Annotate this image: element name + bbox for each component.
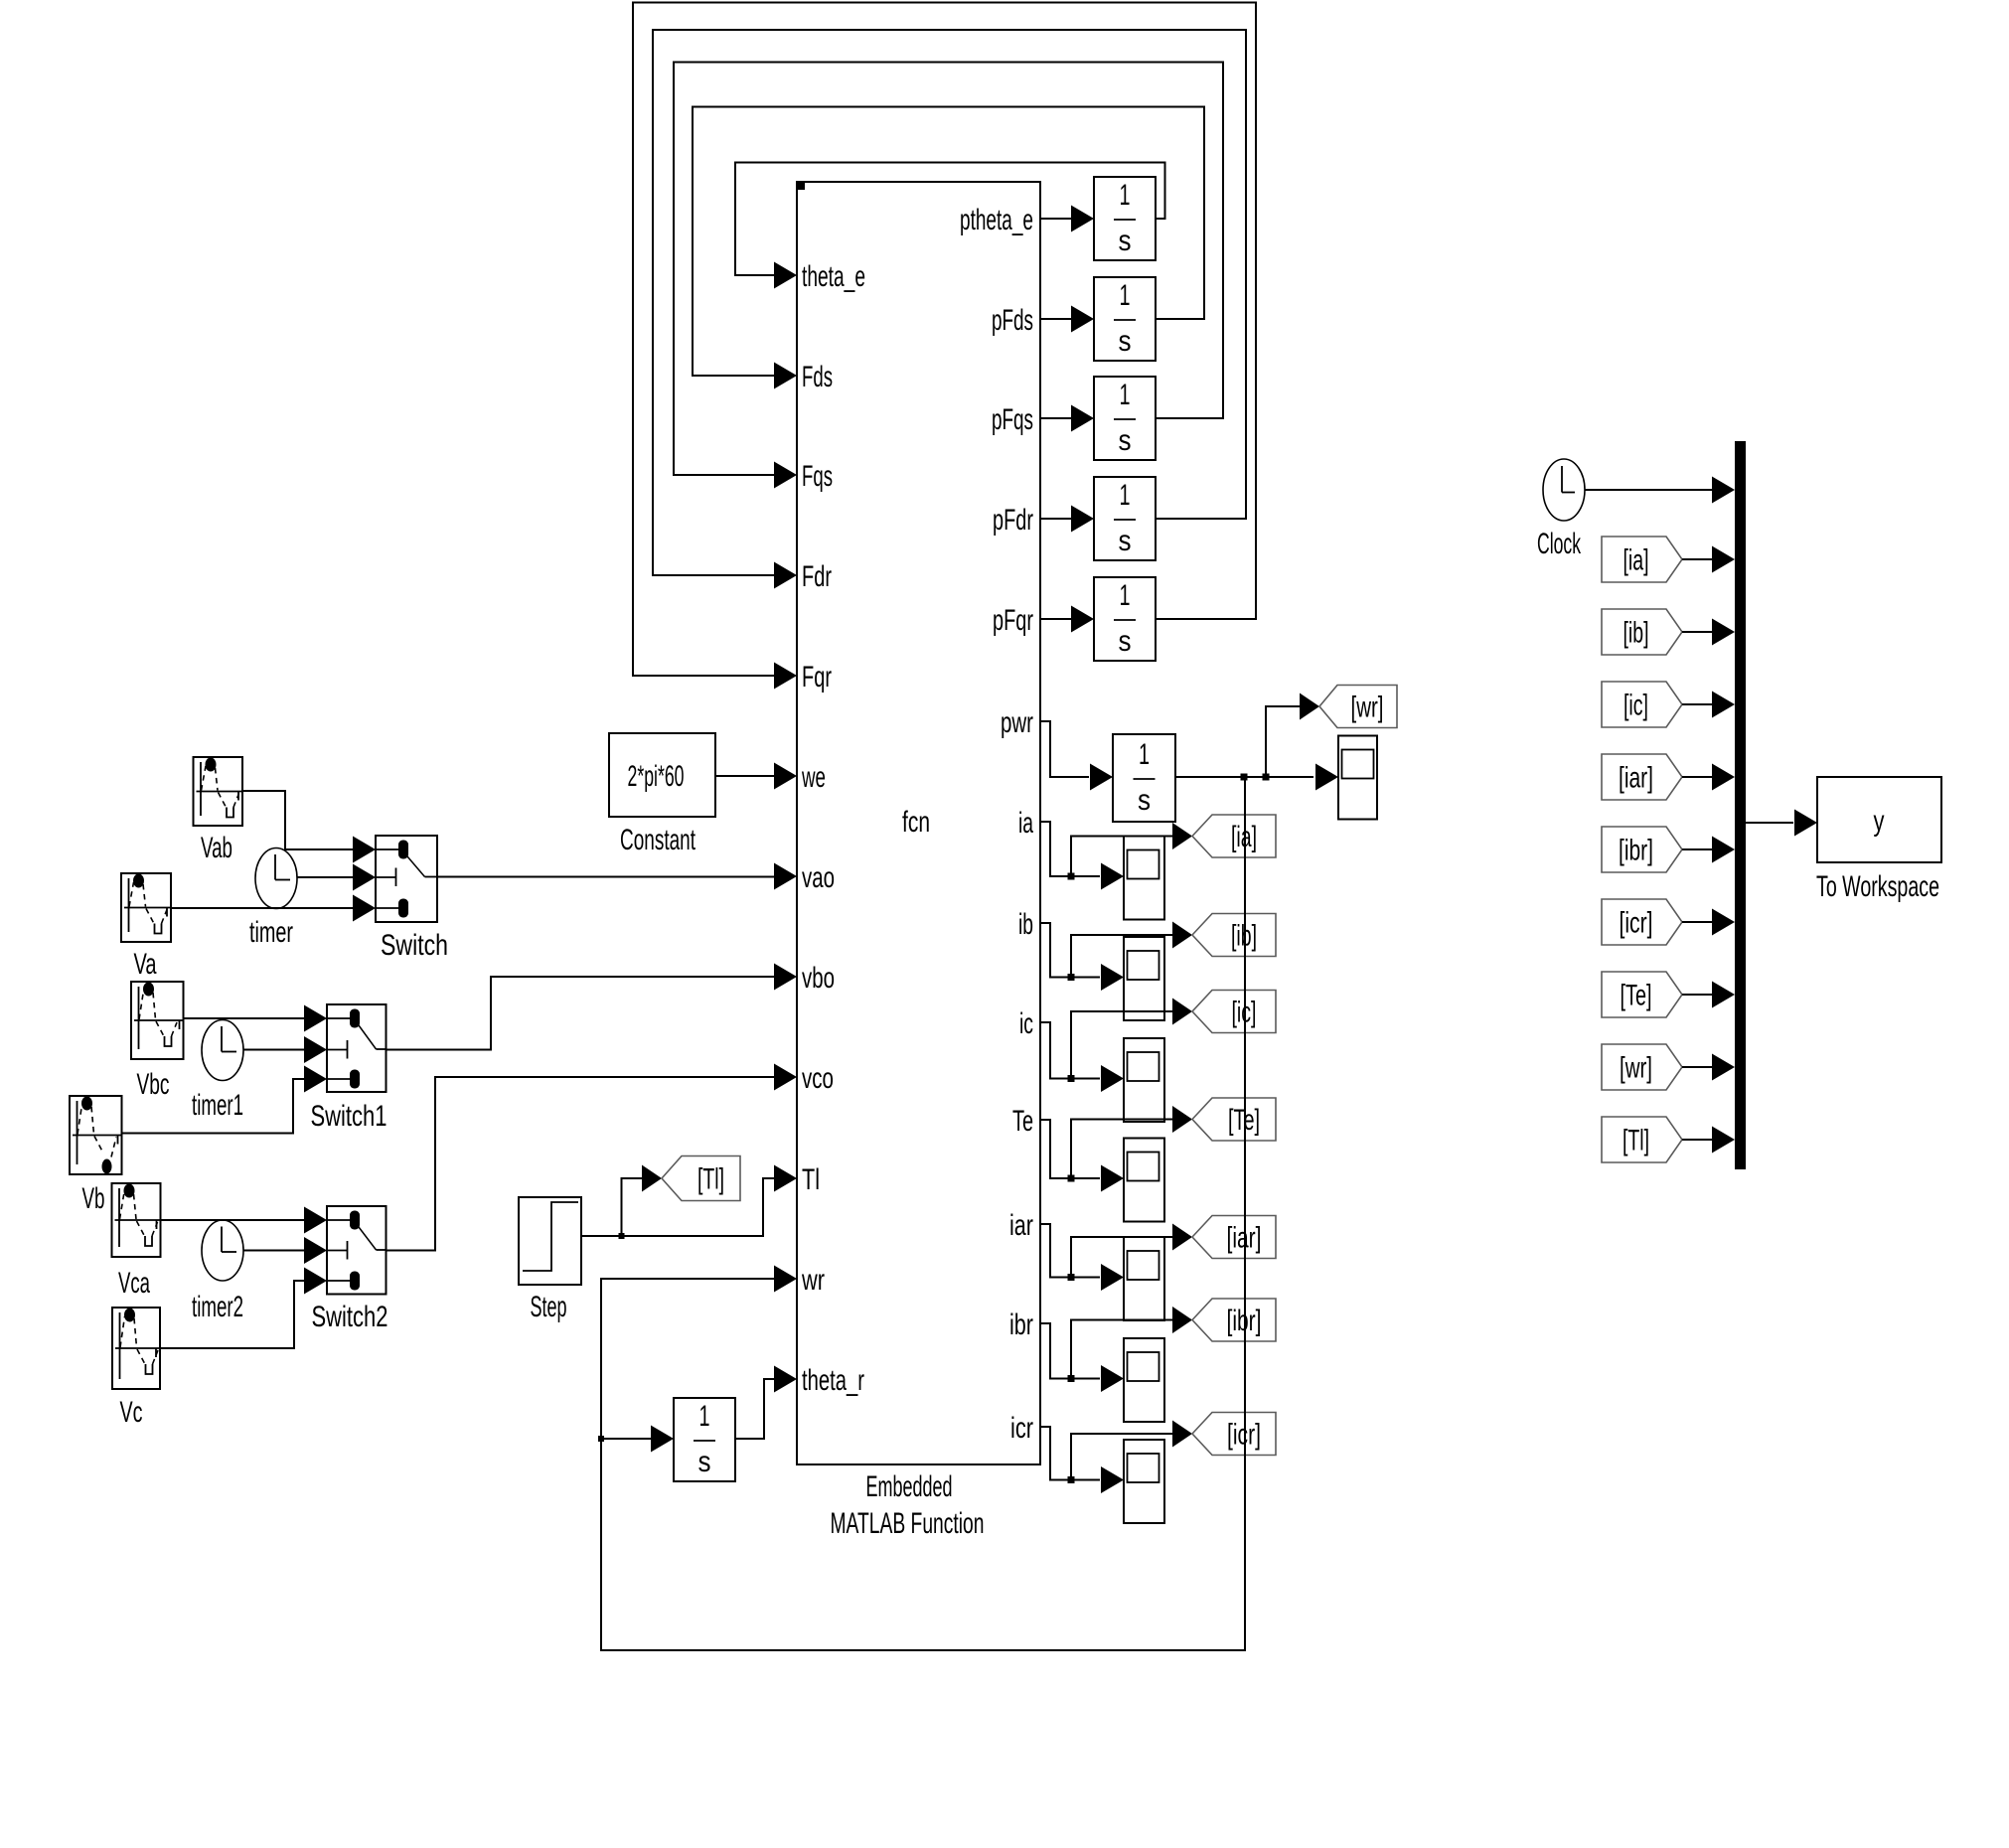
svg-text:theta_e: theta_e [802, 260, 865, 293]
svg-text:pFqr: pFqr [993, 604, 1033, 637]
svg-text:Switch2: Switch2 [312, 1301, 388, 1333]
svg-text:Vca: Vca [118, 1267, 150, 1300]
svg-text:Step: Step [531, 1291, 567, 1323]
svg-text:we: we [801, 761, 826, 794]
svg-text:s: s [1119, 525, 1132, 557]
svg-text:To Workspace: To Workspace [1816, 870, 1939, 903]
svg-text:[ibr]: [ibr] [1619, 835, 1653, 867]
svg-text:s: s [1119, 424, 1132, 457]
svg-text:Vbc: Vbc [137, 1068, 170, 1101]
svg-text:theta_r: theta_r [802, 1364, 864, 1397]
svg-text:vao: vao [802, 861, 835, 894]
svg-text:[wr]: [wr] [1620, 1052, 1652, 1085]
svg-text:ib: ib [1018, 908, 1033, 941]
svg-text:timer: timer [249, 916, 293, 949]
svg-text:1: 1 [1120, 279, 1131, 312]
svg-text:[wr]: [wr] [1351, 692, 1384, 724]
svg-text:Fdr: Fdr [802, 560, 832, 593]
svg-text:Fds: Fds [802, 361, 833, 393]
svg-text:1: 1 [1139, 738, 1150, 771]
svg-text:pwr: pwr [1001, 706, 1033, 739]
svg-text:y: y [1874, 805, 1885, 838]
svg-text:vco: vco [802, 1062, 834, 1095]
svg-text:Embedded: Embedded [866, 1470, 953, 1503]
svg-text:s: s [698, 1446, 711, 1478]
svg-text:iar: iar [1009, 1209, 1033, 1242]
svg-text:Tl: Tl [802, 1163, 820, 1196]
svg-text:1: 1 [699, 1400, 710, 1433]
svg-text:pFdr: pFdr [993, 504, 1033, 537]
svg-text:Switch: Switch [381, 929, 448, 962]
svg-text:Va: Va [134, 948, 157, 981]
svg-text:[icr]: [icr] [1620, 907, 1653, 940]
svg-text:wr: wr [801, 1264, 825, 1297]
svg-text:s: s [1119, 325, 1132, 358]
svg-text:1: 1 [1120, 479, 1131, 512]
svg-text:[Te]: [Te] [1621, 980, 1652, 1012]
svg-text:icr: icr [1010, 1412, 1033, 1445]
svg-text:s: s [1119, 225, 1132, 257]
svg-text:Fqr: Fqr [802, 661, 832, 693]
svg-text:pFqs: pFqs [992, 403, 1033, 436]
svg-text:s: s [1119, 625, 1132, 658]
svg-text:1: 1 [1120, 579, 1131, 612]
svg-text:Constant: Constant [620, 824, 695, 856]
svg-text:timer2: timer2 [192, 1291, 243, 1323]
svg-text:[Tl]: [Tl] [697, 1163, 724, 1196]
svg-text:[ia]: [ia] [1623, 544, 1649, 577]
svg-text:1: 1 [1120, 379, 1131, 411]
svg-text:[ib]: [ib] [1623, 617, 1649, 650]
svg-text:1: 1 [1120, 179, 1131, 212]
svg-text:Fqs: Fqs [802, 460, 833, 493]
svg-text:[ic]: [ic] [1623, 690, 1648, 722]
svg-text:Vb: Vb [82, 1182, 105, 1215]
svg-text:ptheta_e: ptheta_e [960, 204, 1033, 236]
svg-text:Switch1: Switch1 [311, 1100, 387, 1133]
svg-text:ibr: ibr [1009, 1309, 1033, 1341]
svg-text:timer1: timer1 [192, 1089, 243, 1122]
svg-text:Te: Te [1012, 1105, 1033, 1138]
svg-text:ic: ic [1019, 1007, 1033, 1040]
svg-text:MATLAB Function: MATLAB Function [831, 1507, 985, 1540]
svg-text:[Tl]: [Tl] [1623, 1125, 1649, 1157]
svg-text:s: s [1138, 784, 1151, 817]
svg-text:Vc: Vc [120, 1396, 143, 1429]
svg-text:ia: ia [1018, 807, 1033, 840]
svg-text:Vab: Vab [201, 832, 232, 864]
svg-text:vbo: vbo [802, 962, 835, 995]
svg-text:[iar]: [iar] [1619, 762, 1653, 795]
svg-text:2*pi*60: 2*pi*60 [628, 760, 685, 793]
svg-text:pFds: pFds [992, 304, 1033, 337]
svg-text:Clock: Clock [1537, 528, 1582, 560]
svg-text:fcn: fcn [902, 806, 930, 839]
